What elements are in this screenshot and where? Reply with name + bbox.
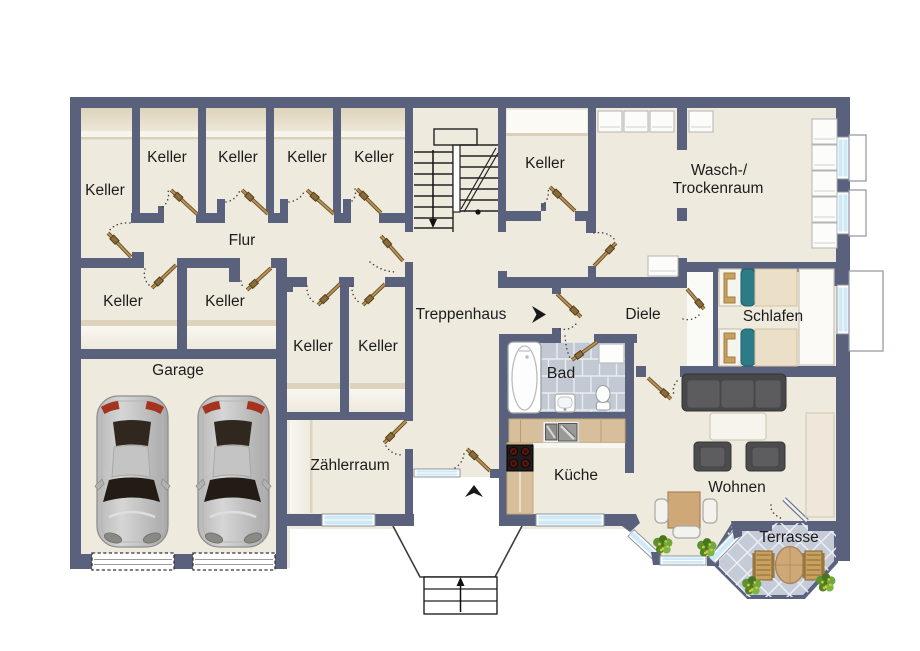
svg-text:Schlafen: Schlafen xyxy=(743,308,803,325)
svg-text:Keller: Keller xyxy=(354,149,394,166)
svg-text:Keller: Keller xyxy=(103,293,143,310)
svg-text:Keller: Keller xyxy=(358,338,398,355)
svg-text:Keller: Keller xyxy=(287,149,327,166)
svg-text:Küche: Küche xyxy=(554,467,598,484)
svg-text:Keller: Keller xyxy=(85,182,125,199)
svg-text:Keller: Keller xyxy=(147,149,187,166)
svg-text:Diele: Diele xyxy=(625,306,660,323)
svg-text:Treppenhaus: Treppenhaus xyxy=(416,306,507,323)
svg-text:Zählerraum: Zählerraum xyxy=(310,457,389,474)
svg-text:Wasch-/: Wasch-/ xyxy=(691,162,748,179)
svg-text:Keller: Keller xyxy=(218,149,258,166)
svg-text:Terrasse: Terrasse xyxy=(759,529,818,546)
svg-text:Keller: Keller xyxy=(293,338,333,355)
svg-text:Trockenraum: Trockenraum xyxy=(673,180,764,197)
svg-text:Wohnen: Wohnen xyxy=(708,479,765,496)
svg-text:Keller: Keller xyxy=(525,155,565,172)
svg-text:Garage: Garage xyxy=(152,362,204,379)
svg-text:Flur: Flur xyxy=(229,232,256,249)
svg-text:Bad: Bad xyxy=(547,365,575,382)
svg-text:Keller: Keller xyxy=(205,293,245,310)
